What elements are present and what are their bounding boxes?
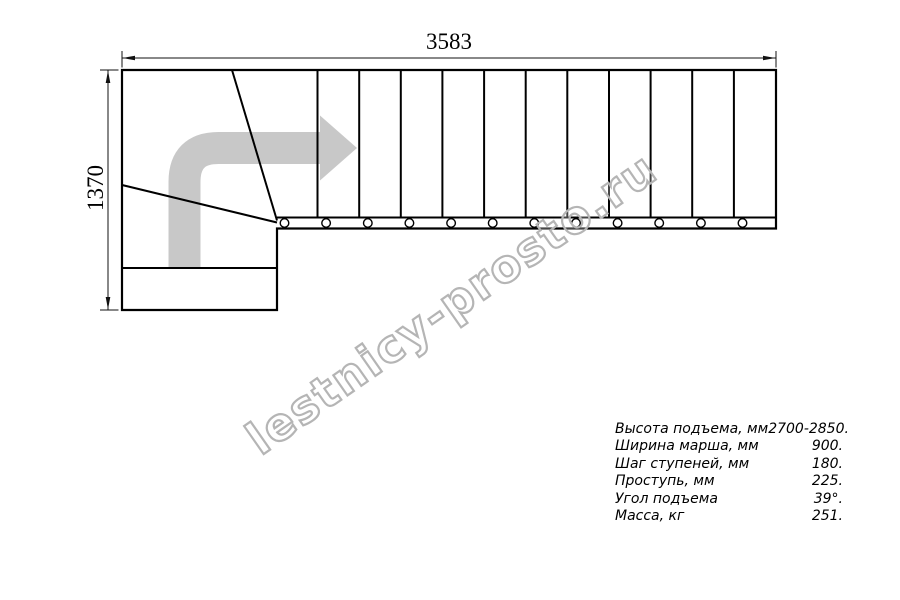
spec-row: Масса, кг 251. [615,508,843,525]
mount-circles [280,219,747,228]
spec-row: Ширина марша, мм 900. [615,438,843,455]
riser-lines [318,70,734,218]
mount-circle [405,219,414,228]
dimension-top-value: 3583 [404,29,494,55]
mount-circle [322,219,331,228]
dimension-left-arrow-top [106,71,111,84]
spec-value: 2700-2850. [768,421,849,438]
mount-circle [738,219,747,228]
spec-row: Угол подъема 39°. [615,491,843,508]
stair-outline [122,70,776,310]
direction-arrow-body [185,148,322,268]
spec-label: Ширина марша, мм [615,438,759,455]
spec-value: 900. [812,438,843,455]
mount-circle [364,219,373,228]
dimension-left-value: 1370 [84,143,108,233]
mount-circle [447,219,456,228]
dimension-top-arrow-left [123,56,136,61]
mount-circle [572,219,581,228]
drawing-canvas: 3583 1370 lestnicy-prosto.ru Высота подъ… [0,0,900,600]
stair-outer-boundary [122,70,776,310]
mount-circle [530,219,539,228]
mount-circle [655,219,664,228]
spec-value: 251. [812,508,843,525]
spec-label: Высота подъема, мм [615,421,768,438]
mount-circle [613,219,622,228]
spec-value: 39°. [814,491,843,508]
spec-row: Шаг ступеней, мм 180. [615,456,843,473]
spec-row: Проступь, мм 225. [615,473,843,490]
spec-label: Проступь, мм [615,473,715,490]
spec-label: Масса, кг [615,508,684,525]
spec-row: Высота подъема, мм 2700-2850. [615,421,843,438]
mount-circle [697,219,706,228]
specs-table: Высота подъема, мм 2700-2850. Ширина мар… [615,421,843,525]
spec-label: Шаг ступеней, мм [615,456,749,473]
mount-circle [280,219,289,228]
mount-circle [488,219,497,228]
dimension-left-arrow-bottom [106,297,111,310]
spec-value: 225. [812,473,843,490]
dimension-top-arrow-right [763,56,776,61]
spec-value: 180. [812,456,843,473]
direction-arrow-head [320,116,357,181]
spec-label: Угол подъема [615,491,718,508]
direction-arrow [185,116,358,269]
